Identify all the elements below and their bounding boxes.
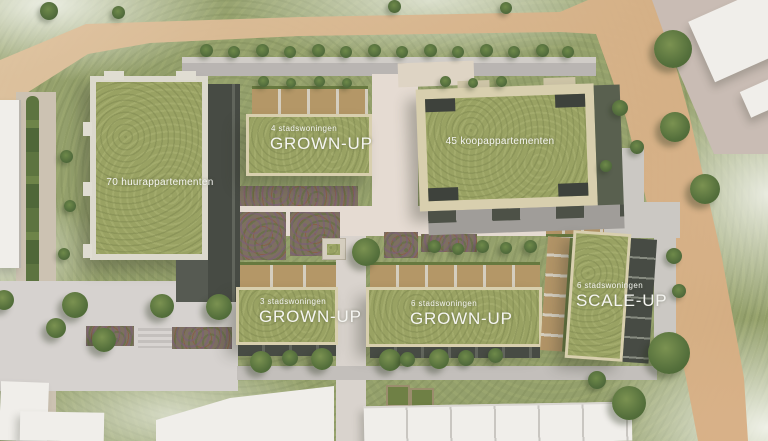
building-45-koopappartementen xyxy=(415,74,624,235)
bush xyxy=(588,371,606,389)
bush xyxy=(424,44,437,57)
tree xyxy=(150,294,174,318)
tree xyxy=(352,238,380,266)
roof-core xyxy=(558,183,588,197)
back-gardens xyxy=(370,262,540,290)
south-facade xyxy=(176,260,208,302)
tree xyxy=(660,112,690,142)
bush xyxy=(536,44,549,57)
tree xyxy=(654,30,692,68)
balcony xyxy=(83,122,92,136)
building-sublabel: 3 stadswoningen xyxy=(260,297,326,306)
roof-core xyxy=(428,187,458,201)
garden-bed xyxy=(384,232,418,258)
bush xyxy=(612,100,628,116)
courtyard-path xyxy=(336,236,366,441)
tree xyxy=(311,348,333,370)
balcony xyxy=(83,244,92,258)
bush xyxy=(500,242,512,254)
building-label: GROWN-UP xyxy=(259,307,362,327)
adjacent-building xyxy=(156,386,334,441)
plaza-planter xyxy=(172,327,232,349)
back-gardens xyxy=(252,86,368,114)
bush xyxy=(388,0,401,13)
bush xyxy=(428,240,441,253)
bush xyxy=(40,2,58,20)
tree xyxy=(429,349,449,369)
plaza-steps xyxy=(138,328,176,348)
bush xyxy=(488,348,503,363)
bush xyxy=(284,46,296,58)
tree xyxy=(612,386,646,420)
roof-notch xyxy=(104,71,124,80)
bush xyxy=(508,46,520,58)
bush xyxy=(282,350,298,366)
planter-box xyxy=(386,385,410,407)
building-70-huurappartementen xyxy=(90,76,240,302)
building-sublabel: 6 stadswoningen xyxy=(577,281,643,290)
site-plan-render: 70 huurappartementen 4 stadswoningen GRO… xyxy=(0,0,768,441)
bush xyxy=(562,46,574,58)
shed-roof xyxy=(327,244,340,255)
building-label: GROWN-UP xyxy=(270,134,373,154)
bush xyxy=(342,78,352,88)
bush xyxy=(458,350,474,366)
building-label: 70 huurappartementen xyxy=(100,177,220,188)
bush xyxy=(258,76,269,87)
tree xyxy=(648,332,690,374)
bush xyxy=(452,46,464,58)
building-label: GROWN-UP xyxy=(410,309,513,329)
bush xyxy=(672,284,686,298)
bush xyxy=(496,76,507,87)
bush xyxy=(452,243,464,255)
bush xyxy=(468,78,478,88)
roof-core xyxy=(425,98,455,112)
back-gardens xyxy=(240,262,336,290)
adjacent-building xyxy=(20,411,104,441)
bush xyxy=(58,248,70,260)
bush xyxy=(200,44,213,57)
bush xyxy=(228,46,240,58)
bush xyxy=(256,44,269,57)
green-roof xyxy=(96,82,202,254)
building-label: 45 koopappartementen xyxy=(420,136,580,147)
bush xyxy=(396,46,408,58)
tree xyxy=(92,328,116,352)
balcony xyxy=(83,182,92,196)
garden-bed xyxy=(240,186,358,206)
bush xyxy=(666,248,682,264)
courtyard-path xyxy=(372,74,418,208)
tree xyxy=(379,349,401,371)
roof-notch xyxy=(176,71,196,80)
bush xyxy=(480,44,493,57)
tree xyxy=(206,294,232,320)
adjacent-building-row xyxy=(364,402,633,441)
adjacent-building xyxy=(0,100,21,268)
tree xyxy=(62,292,88,318)
bush xyxy=(312,44,325,57)
bush xyxy=(314,76,325,87)
bush xyxy=(64,200,76,212)
bush xyxy=(600,160,612,172)
bush xyxy=(286,78,296,88)
building-label: SCALE-UP xyxy=(576,291,667,311)
bush xyxy=(60,150,73,163)
bush xyxy=(524,240,537,253)
tree xyxy=(46,318,66,338)
building-sublabel: 4 stadswoningen xyxy=(271,124,337,133)
bush xyxy=(500,2,512,14)
bush xyxy=(476,240,489,253)
courtyard-path xyxy=(622,148,644,206)
building-sublabel: 6 stadswoningen xyxy=(411,299,477,308)
garden-shed xyxy=(322,238,346,260)
bush xyxy=(400,352,415,367)
tree xyxy=(690,174,720,204)
roof-core xyxy=(555,94,585,108)
bush xyxy=(440,76,451,87)
bush xyxy=(340,46,352,58)
garden-bed xyxy=(240,212,286,260)
bush xyxy=(630,140,644,154)
bush xyxy=(368,44,381,57)
tree xyxy=(250,351,272,373)
bush xyxy=(112,6,125,19)
